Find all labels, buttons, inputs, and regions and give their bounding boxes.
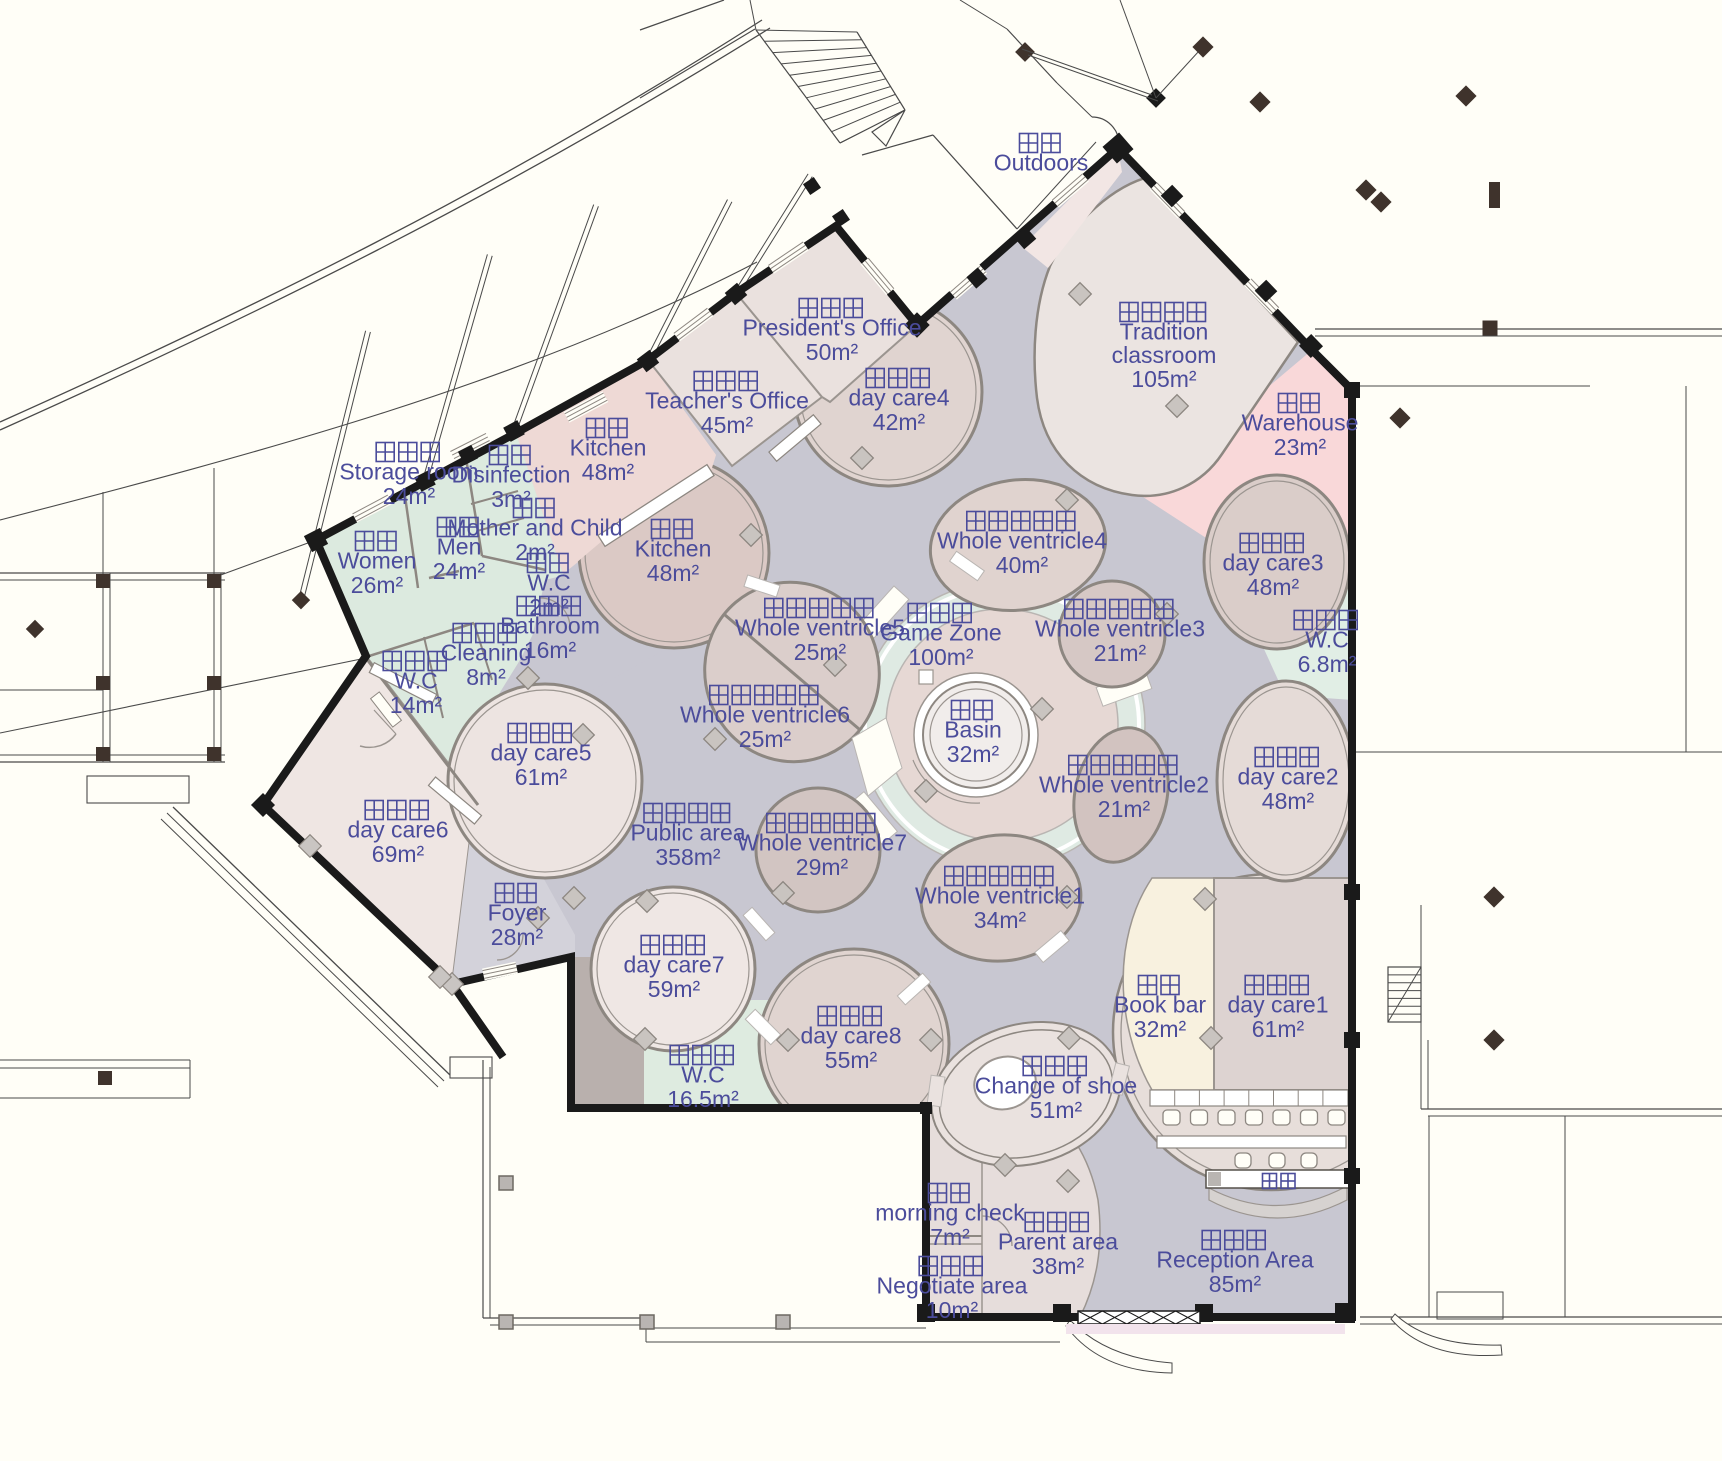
svg-text:25m²: 25m² xyxy=(739,726,792,752)
svg-text:W.C: W.C xyxy=(527,569,570,595)
svg-text:Whole ventricle4: Whole ventricle4 xyxy=(937,527,1107,553)
svg-text:21m²: 21m² xyxy=(1098,796,1151,822)
svg-text:21m²: 21m² xyxy=(1094,640,1147,666)
svg-text:48m²: 48m² xyxy=(582,459,635,485)
svg-text:42m²: 42m² xyxy=(873,409,926,435)
svg-text:32m²: 32m² xyxy=(947,741,1000,767)
svg-text:69m²: 69m² xyxy=(372,841,425,867)
svg-text:48m²: 48m² xyxy=(1262,788,1315,814)
svg-text:W.C: W.C xyxy=(1305,626,1348,652)
svg-text:day care2: day care2 xyxy=(1237,763,1338,789)
svg-text:day care8: day care8 xyxy=(800,1022,901,1048)
svg-text:6.8m²: 6.8m² xyxy=(1298,651,1357,677)
svg-text:29m²: 29m² xyxy=(796,854,849,880)
svg-text:24m²: 24m² xyxy=(383,483,436,509)
svg-text:Change of shoe: Change of shoe xyxy=(975,1072,1137,1098)
svg-text:2m²: 2m² xyxy=(515,539,555,565)
svg-text:Warehouse: Warehouse xyxy=(1242,409,1359,435)
svg-text:100m²: 100m² xyxy=(908,644,974,670)
svg-text:26m²: 26m² xyxy=(351,572,404,598)
svg-text:Negotiate area: Negotiate area xyxy=(877,1272,1028,1298)
svg-text:16m²: 16m² xyxy=(524,637,577,663)
svg-text:Whole ventricle3: Whole ventricle3 xyxy=(1035,615,1205,641)
svg-text:classroom: classroom xyxy=(1112,342,1217,368)
svg-text:10m²: 10m² xyxy=(926,1297,979,1323)
svg-text:Bathroom: Bathroom xyxy=(500,612,600,638)
svg-text:W.C: W.C xyxy=(394,667,437,693)
svg-text:Whole ventricle7: Whole ventricle7 xyxy=(737,829,907,855)
svg-text:W.C: W.C xyxy=(681,1061,724,1087)
svg-text:Reception Area: Reception Area xyxy=(1156,1246,1313,1272)
svg-text:34m²: 34m² xyxy=(974,907,1027,933)
svg-text:day care1: day care1 xyxy=(1227,991,1328,1017)
svg-text:Women: Women xyxy=(338,547,417,573)
svg-text:358m²: 358m² xyxy=(655,844,721,870)
svg-text:40m²: 40m² xyxy=(996,552,1049,578)
svg-text:Kitchen: Kitchen xyxy=(635,535,712,561)
svg-text:Men: Men xyxy=(437,533,482,559)
svg-text:25m²: 25m² xyxy=(794,639,847,665)
svg-text:day care6: day care6 xyxy=(347,816,448,842)
svg-text:Parent area: Parent area xyxy=(998,1228,1118,1254)
svg-text:Whole ventricle2: Whole ventricle2 xyxy=(1039,771,1209,797)
svg-text:28m²: 28m² xyxy=(491,924,544,950)
svg-text:Cleaning: Cleaning xyxy=(441,639,532,665)
svg-text:Basin: Basin xyxy=(944,716,1002,742)
svg-text:Teacher's Office: Teacher's Office xyxy=(645,387,809,413)
svg-text:61m²: 61m² xyxy=(515,764,568,790)
svg-text:48m²: 48m² xyxy=(1247,574,1300,600)
svg-text:Kitchen: Kitchen xyxy=(570,434,647,460)
svg-text:50m²: 50m² xyxy=(806,339,859,365)
svg-text:24m²: 24m² xyxy=(433,558,486,584)
svg-text:President's Office: President's Office xyxy=(742,314,921,340)
svg-text:day care4: day care4 xyxy=(848,384,949,410)
svg-text:23m²: 23m² xyxy=(1274,434,1327,460)
svg-text:Outdoors: Outdoors xyxy=(994,149,1089,175)
svg-text:85m²: 85m² xyxy=(1209,1271,1262,1297)
svg-text:Public area: Public area xyxy=(630,819,745,845)
svg-text:8m²: 8m² xyxy=(466,664,506,690)
svg-text:38m²: 38m² xyxy=(1032,1253,1085,1279)
svg-text:59m²: 59m² xyxy=(648,976,701,1002)
svg-text:day care7: day care7 xyxy=(623,951,724,977)
svg-text:Foyer: Foyer xyxy=(488,899,547,925)
svg-text:16.5m²: 16.5m² xyxy=(667,1086,739,1112)
svg-text:45m²: 45m² xyxy=(701,412,754,438)
svg-text:32m²: 32m² xyxy=(1134,1016,1187,1042)
svg-text:7m²: 7m² xyxy=(930,1224,970,1250)
svg-text:61m²: 61m² xyxy=(1252,1016,1305,1042)
svg-text:day care3: day care3 xyxy=(1222,549,1323,575)
svg-text:Game Zone: Game Zone xyxy=(880,619,1001,645)
svg-text:Whole ventricle6: Whole ventricle6 xyxy=(680,701,850,727)
svg-text:Tradition: Tradition xyxy=(1120,318,1209,344)
svg-text:14m²: 14m² xyxy=(390,692,443,718)
svg-text:day care5: day care5 xyxy=(490,739,591,765)
svg-text:51m²: 51m² xyxy=(1030,1097,1083,1123)
svg-text:105m²: 105m² xyxy=(1131,366,1197,392)
svg-text:morning check: morning check xyxy=(875,1199,1025,1225)
svg-text:48m²: 48m² xyxy=(647,560,700,586)
svg-text:Whole ventricle1: Whole ventricle1 xyxy=(915,882,1085,908)
svg-text:Disinfection: Disinfection xyxy=(452,461,571,487)
svg-text:55m²: 55m² xyxy=(825,1047,878,1073)
svg-text:Book bar: Book bar xyxy=(1114,991,1206,1017)
